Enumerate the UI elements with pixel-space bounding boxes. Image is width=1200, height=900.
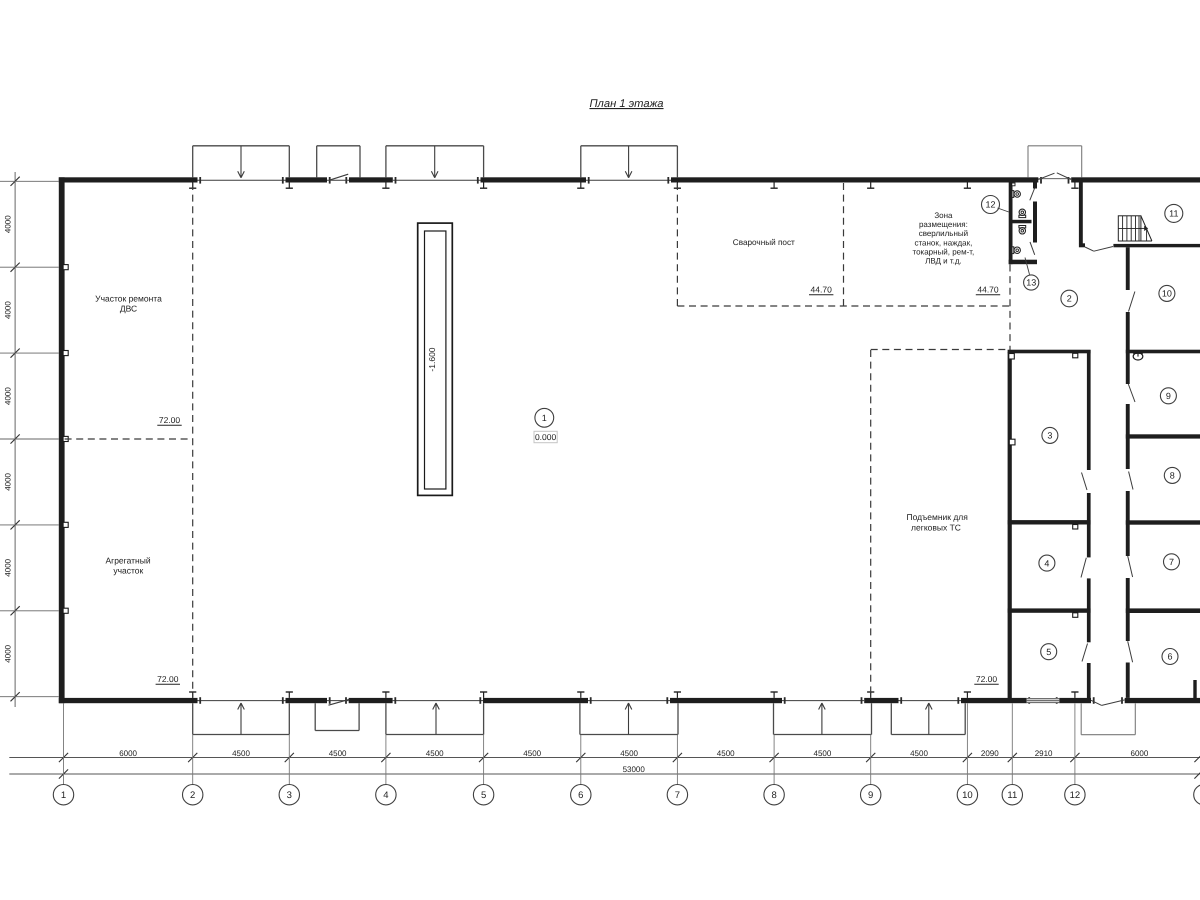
svg-text:13: 13: [1026, 278, 1036, 288]
svg-text:4500: 4500: [426, 749, 444, 758]
svg-text:Зона: Зона: [934, 211, 953, 220]
svg-text:сверлильный: сверлильный: [919, 229, 968, 238]
svg-text:1: 1: [542, 413, 547, 423]
svg-text:6000: 6000: [1131, 749, 1149, 758]
svg-text:72.00: 72.00: [157, 674, 179, 684]
svg-text:ДВС: ДВС: [120, 304, 137, 314]
svg-text:0.000: 0.000: [535, 432, 557, 442]
svg-text:72.00: 72.00: [976, 674, 998, 684]
svg-text:1: 1: [61, 790, 66, 801]
svg-text:4500: 4500: [329, 749, 347, 758]
svg-text:5: 5: [481, 790, 486, 801]
svg-text:4500: 4500: [232, 749, 250, 758]
svg-text:4000: 4000: [4, 644, 13, 662]
svg-text:4500: 4500: [523, 749, 541, 758]
svg-text:4500: 4500: [814, 749, 832, 758]
svg-text:10: 10: [1162, 289, 1172, 299]
svg-text:9: 9: [1166, 391, 1171, 401]
svg-text:4000: 4000: [4, 558, 13, 576]
svg-text:размещения:: размещения:: [919, 220, 968, 229]
svg-text:8: 8: [1170, 471, 1175, 481]
svg-text:5: 5: [1046, 647, 1051, 657]
svg-text:участок: участок: [113, 566, 143, 576]
svg-text:10: 10: [962, 790, 973, 801]
svg-text:12: 12: [985, 200, 995, 210]
svg-text:11: 11: [1007, 790, 1017, 801]
svg-text:Участок ремонта: Участок ремонта: [95, 294, 162, 304]
svg-text:Подъемник для: Подъемник для: [907, 512, 969, 522]
svg-text:станок, наждак,: станок, наждак,: [914, 238, 972, 247]
svg-text:4: 4: [1044, 558, 1049, 568]
svg-text:4000: 4000: [4, 215, 13, 233]
svg-text:12: 12: [1070, 790, 1081, 801]
svg-text:2: 2: [190, 790, 195, 801]
svg-text:72.00: 72.00: [159, 415, 181, 425]
svg-text:Агрегатный: Агрегатный: [105, 556, 150, 566]
svg-text:3: 3: [1047, 431, 1052, 441]
svg-text:44.70: 44.70: [977, 284, 999, 294]
svg-text:44.70: 44.70: [811, 284, 833, 294]
svg-text:ЛВД и т.д.: ЛВД и т.д.: [925, 257, 962, 266]
svg-text:2090: 2090: [981, 749, 999, 758]
svg-text:9: 9: [868, 790, 873, 801]
svg-text:7: 7: [675, 790, 680, 801]
svg-text:7: 7: [1169, 557, 1174, 567]
svg-text:4000: 4000: [4, 472, 13, 490]
svg-text:4000: 4000: [4, 301, 13, 319]
svg-text:токарный, рем-т,: токарный, рем-т,: [913, 248, 975, 257]
svg-text:4000: 4000: [4, 387, 13, 405]
svg-text:6: 6: [1167, 652, 1172, 662]
svg-text:Сварочный пост: Сварочный пост: [733, 238, 795, 247]
svg-text:4500: 4500: [717, 749, 735, 758]
svg-text:6: 6: [578, 790, 583, 801]
svg-text:4500: 4500: [620, 749, 638, 758]
svg-text:2910: 2910: [1035, 749, 1053, 758]
svg-text:6000: 6000: [119, 749, 137, 758]
svg-text:53000: 53000: [623, 765, 646, 774]
svg-text:4: 4: [383, 790, 388, 801]
svg-text:11: 11: [1169, 209, 1178, 219]
svg-text:8: 8: [771, 790, 776, 801]
svg-text:План 1 этажа: План 1 этажа: [589, 98, 663, 110]
svg-text:легковых ТС: легковых ТС: [911, 523, 961, 533]
svg-text:-1.600: -1.600: [427, 347, 437, 371]
svg-text:2: 2: [1067, 294, 1072, 304]
svg-text:4500: 4500: [910, 749, 928, 758]
svg-text:3: 3: [287, 790, 292, 801]
